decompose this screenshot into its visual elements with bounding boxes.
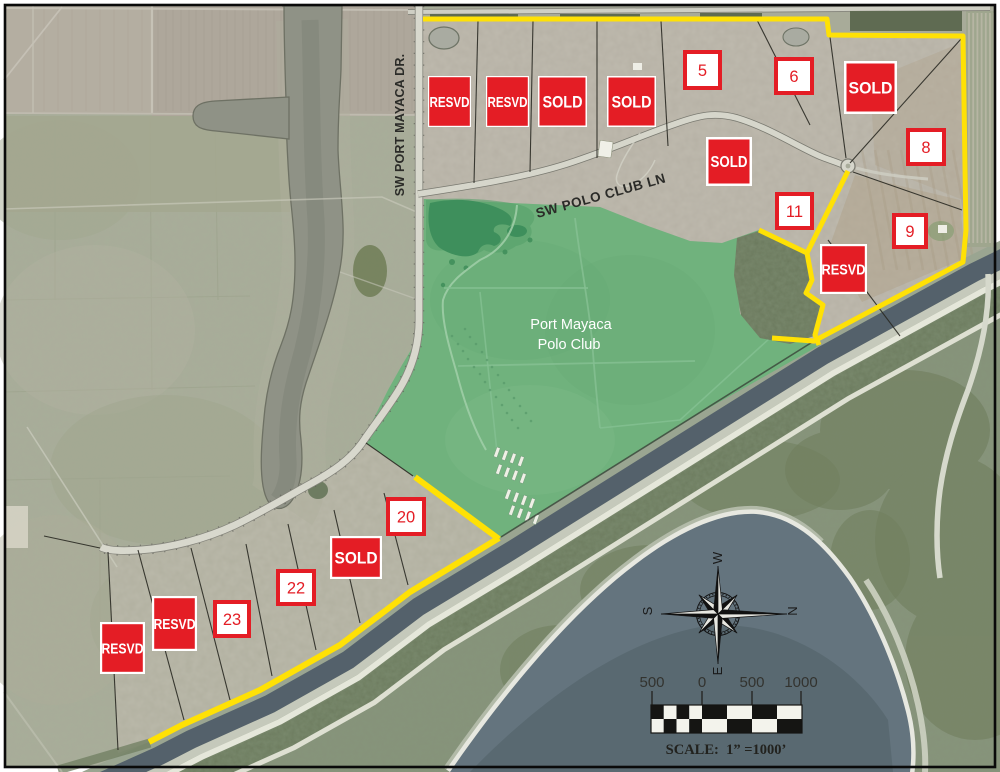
svg-text:SOLD: SOLD (711, 154, 748, 171)
svg-text:RESVD: RESVD (102, 640, 144, 657)
svg-text:E: E (710, 666, 725, 675)
svg-text:Polo Club: Polo Club (538, 337, 601, 353)
svg-text:SOLD: SOLD (543, 93, 583, 111)
svg-text:9: 9 (905, 223, 914, 241)
svg-text:1000: 1000 (784, 674, 817, 691)
svg-text:0: 0 (698, 674, 706, 691)
svg-text:6: 6 (789, 68, 798, 86)
svg-text:SOLD: SOLD (849, 79, 893, 97)
svg-text:500: 500 (639, 674, 664, 691)
svg-text:RESVD: RESVD (430, 94, 470, 111)
svg-text:S: S (640, 606, 655, 615)
svg-text:SOLD: SOLD (612, 93, 652, 111)
svg-text:22: 22 (287, 579, 305, 597)
svg-text:5: 5 (698, 62, 707, 80)
svg-text:500: 500 (739, 674, 764, 691)
svg-text:Port Mayaca: Port Mayaca (530, 317, 612, 333)
svg-text:SOLD: SOLD (335, 549, 378, 567)
svg-text:RESVD: RESVD (154, 616, 196, 633)
svg-text:SCALE: 1” =1000’: SCALE: 1” =1000’ (666, 742, 787, 758)
svg-text:23: 23 (223, 611, 241, 629)
svg-text:N: N (785, 606, 800, 615)
svg-text:SW PORT MAYACA DR.: SW PORT MAYACA DR. (393, 54, 407, 197)
svg-text:11: 11 (786, 203, 803, 221)
svg-text:8: 8 (921, 139, 930, 157)
svg-text:RESVD: RESVD (488, 94, 528, 111)
svg-text:20: 20 (397, 508, 415, 526)
svg-text:W: W (710, 551, 725, 564)
svg-text:RESVD: RESVD (822, 261, 866, 278)
